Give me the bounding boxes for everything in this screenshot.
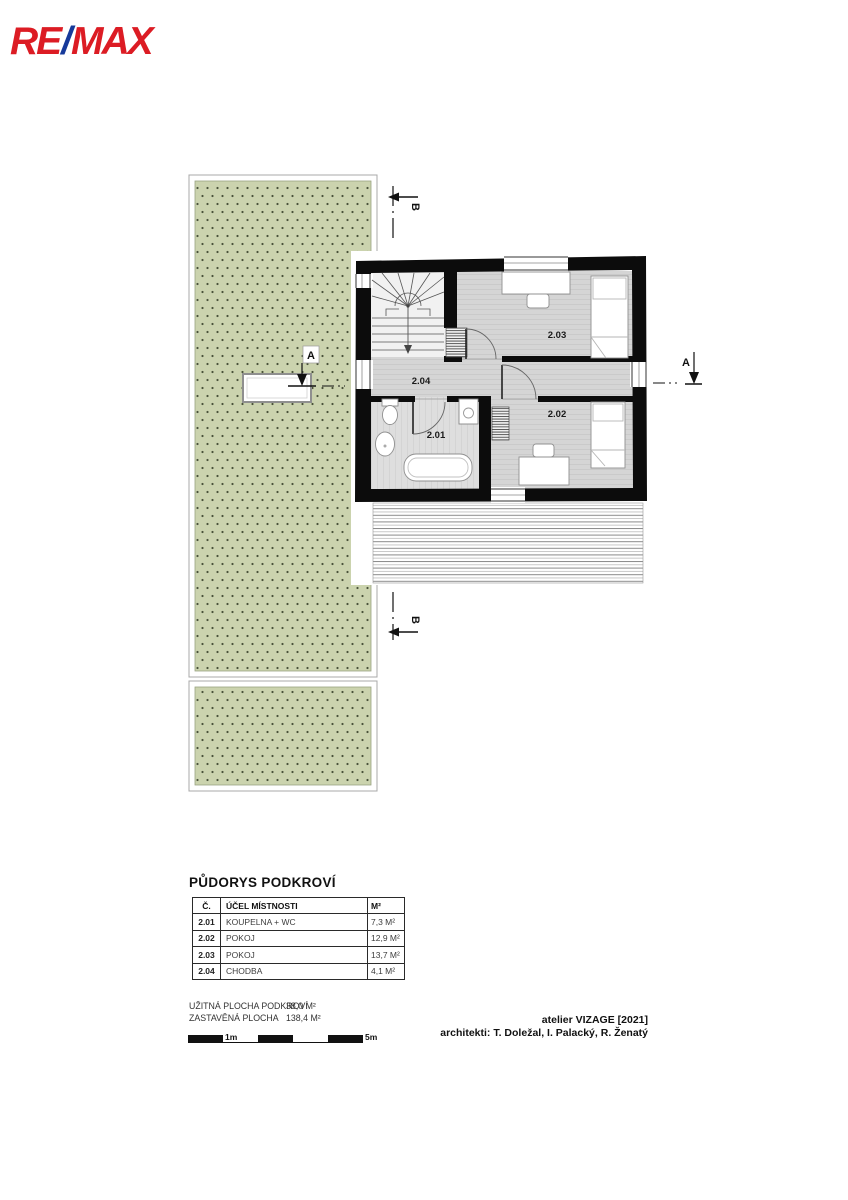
- roof-garden-upper: [189, 175, 377, 677]
- room-purpose: CHODBA: [221, 963, 368, 979]
- room-label-203: 2.03: [548, 330, 567, 341]
- window-west: [354, 360, 373, 389]
- summary-label: ZASTAVĚNÁ PLOCHA: [189, 1013, 286, 1025]
- room-purpose: KOUPELNA + WC: [221, 914, 368, 930]
- room-number: 2.01: [193, 914, 221, 930]
- room-number: 2.04: [193, 963, 221, 979]
- room-area-table: Č. ÚČEL MÍSTNOSTI M² 2.01 KOUPELNA + WC …: [192, 897, 405, 980]
- scale-segment: [258, 1035, 293, 1042]
- section-a-label: A: [307, 350, 315, 362]
- roof-slope: [373, 503, 643, 583]
- washing-machine: [459, 399, 478, 424]
- scale-segment: [328, 1035, 363, 1042]
- room-area: 12,9 M²: [368, 930, 405, 946]
- table-row: 2.03 POKOJ 13,7 M²: [193, 947, 405, 963]
- roof-garden-lower: [189, 681, 377, 791]
- table-header-row: Č. ÚČEL MÍSTNOSTI M²: [193, 898, 405, 914]
- col-header-purpose: ÚČEL MÍSTNOSTI: [221, 898, 368, 914]
- room-label-202: 2.02: [548, 409, 567, 420]
- summary-value: 38,0 M²: [286, 1001, 316, 1011]
- room-purpose: POKOJ: [221, 947, 368, 963]
- room-label-204: 2.04: [412, 376, 431, 387]
- col-header-number: Č.: [193, 898, 221, 914]
- section-a-label: A: [682, 357, 690, 369]
- room-area: 7,3 M²: [368, 914, 405, 930]
- table-row: 2.02 POKOJ 12,9 M²: [193, 930, 405, 946]
- plan-title: PŮDORYS PODKROVÍ: [189, 875, 336, 890]
- col-header-area: M²: [368, 898, 405, 914]
- floorplan-page: RE/MAX: [0, 0, 848, 1200]
- scale-baseline: [188, 1042, 363, 1044]
- window-north: [504, 255, 568, 273]
- scale-bar: 1m 5m: [188, 1033, 368, 1045]
- wardrobe-202: [492, 407, 509, 440]
- window-east: [630, 362, 649, 387]
- section-marker-b-bottom: B: [388, 592, 421, 640]
- summary-label: UŽITNÁ PLOCHA PODKROVÍ: [189, 1001, 286, 1013]
- room-number: 2.02: [193, 930, 221, 946]
- room-area: 4,1 M²: [368, 963, 405, 979]
- credits-architects: architekti: T. Doležal, I. Palacký, R. Ž…: [440, 1027, 648, 1040]
- section-marker-b-top: B: [388, 186, 421, 240]
- scale-label-5m: 5m: [365, 1032, 377, 1042]
- wardrobe-hall: [446, 328, 467, 357]
- summary-line: UŽITNÁ PLOCHA PODKROVÍ38,0 M²: [189, 1001, 321, 1013]
- summary-value: 138,4 M²: [286, 1013, 321, 1023]
- section-b-label: B: [409, 616, 421, 624]
- section-marker-a-right: A: [653, 352, 702, 384]
- room-label-201: 2.01: [427, 430, 446, 441]
- room-purpose: POKOJ: [221, 930, 368, 946]
- summary-line: ZASTAVĚNÁ PLOCHA138,4 M²: [189, 1013, 321, 1025]
- room-area: 13,7 M²: [368, 947, 405, 963]
- scale-label-1m: 1m: [225, 1032, 237, 1042]
- table-row: 2.04 CHODBA 4,1 M²: [193, 963, 405, 979]
- plan-drawing: 2.01 2.02 2.03 2.04 A A B: [0, 0, 848, 1200]
- credits: atelier VIZAGE [2021] architekti: T. Dol…: [440, 1014, 648, 1040]
- section-b-label: B: [409, 203, 421, 211]
- window-south: [491, 487, 525, 503]
- window-west-small: [354, 274, 373, 288]
- room-number: 2.03: [193, 947, 221, 963]
- credits-studio: atelier VIZAGE [2021]: [440, 1014, 648, 1027]
- scale-segment: [188, 1035, 223, 1042]
- table-row: 2.01 KOUPELNA + WC 7,3 M²: [193, 914, 405, 930]
- area-summary: UŽITNÁ PLOCHA PODKROVÍ38,0 M² ZASTAVĚNÁ …: [189, 1001, 321, 1024]
